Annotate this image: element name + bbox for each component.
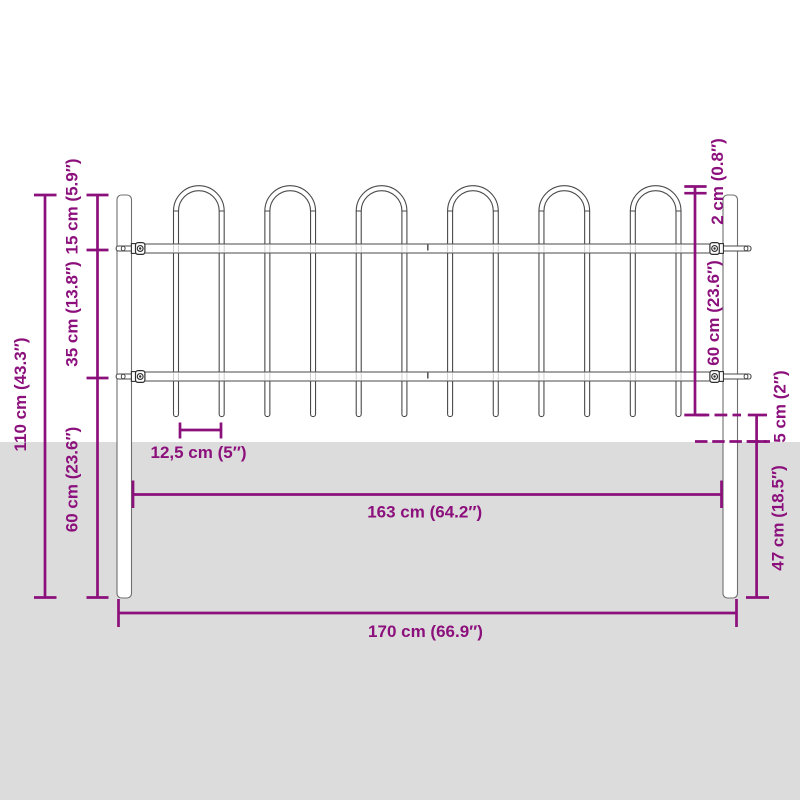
svg-text:60 cm (23.6″): 60 cm (23.6″) [63,427,82,532]
svg-text:2 cm (0.8″): 2 cm (0.8″) [708,138,727,225]
svg-text:35 cm (13.8″): 35 cm (13.8″) [63,261,82,366]
svg-text:12,5 cm (5″): 12,5 cm (5″) [150,443,246,462]
svg-text:15 cm (5.9″): 15 cm (5.9″) [63,158,82,254]
svg-text:47 cm (18.5″): 47 cm (18.5″) [769,465,788,570]
svg-text:170 cm (66.9″): 170 cm (66.9″) [368,622,483,641]
svg-text:5 cm (2″): 5 cm (2″) [771,370,790,442]
svg-text:60 cm (23.6″): 60 cm (23.6″) [704,260,723,365]
svg-text:110 cm (43.3″): 110 cm (43.3″) [11,338,30,452]
svg-text:163 cm (64.2″): 163 cm (64.2″) [367,503,482,522]
